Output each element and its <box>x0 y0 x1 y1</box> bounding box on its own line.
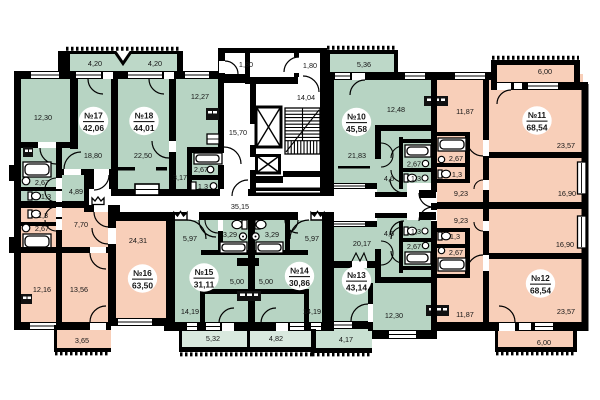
svg-text:4,17: 4,17 <box>339 335 353 344</box>
svg-text:14,04: 14,04 <box>297 93 315 102</box>
svg-text:2,67: 2,67 <box>194 165 208 174</box>
svg-text:23,57: 23,57 <box>557 307 575 316</box>
svg-text:5,97: 5,97 <box>305 234 319 243</box>
svg-text:12,16: 12,16 <box>33 285 51 294</box>
svg-text:31,11: 31,11 <box>194 279 215 289</box>
svg-text:2,67: 2,67 <box>449 248 463 257</box>
svg-text:35,15: 35,15 <box>231 202 249 211</box>
svg-text:1,3: 1,3 <box>450 232 460 241</box>
svg-text:14,19: 14,19 <box>181 307 199 316</box>
svg-text:1,3: 1,3 <box>38 211 48 220</box>
svg-text:№13: №13 <box>347 270 366 280</box>
svg-text:14,19: 14,19 <box>303 307 321 316</box>
svg-text:3,17: 3,17 <box>173 173 187 182</box>
svg-text:16,90: 16,90 <box>556 240 574 249</box>
svg-text:5,36: 5,36 <box>357 60 371 69</box>
svg-text:12,30: 12,30 <box>385 311 403 320</box>
svg-text:3,29: 3,29 <box>223 230 237 239</box>
svg-text:4,20: 4,20 <box>148 59 162 68</box>
svg-text:2,67: 2,67 <box>407 242 421 251</box>
svg-text:9,23: 9,23 <box>454 216 468 225</box>
svg-text:1,3: 1,3 <box>452 170 462 179</box>
svg-text:1,80: 1,80 <box>303 61 317 70</box>
svg-text:1,3: 1,3 <box>411 227 421 236</box>
svg-text:20,17: 20,17 <box>353 239 371 248</box>
svg-text:21,83: 21,83 <box>348 151 366 160</box>
svg-text:№17: №17 <box>84 110 103 120</box>
svg-text:№16: №16 <box>133 268 152 278</box>
svg-text:4,89: 4,89 <box>69 187 83 196</box>
svg-text:30,86: 30,86 <box>289 278 310 288</box>
svg-text:№15: №15 <box>195 267 214 277</box>
svg-text:2,67: 2,67 <box>35 178 49 187</box>
svg-text:5,32: 5,32 <box>206 334 220 343</box>
svg-text:23,57: 23,57 <box>557 141 575 150</box>
svg-text:№10: №10 <box>347 111 366 121</box>
svg-text:68,54: 68,54 <box>530 285 551 295</box>
svg-text:2,67: 2,67 <box>35 224 49 233</box>
svg-text:12,27: 12,27 <box>191 92 209 101</box>
svg-text:11,87: 11,87 <box>456 310 474 319</box>
svg-text:42,06: 42,06 <box>83 123 104 133</box>
svg-text:24,31: 24,31 <box>129 236 147 245</box>
svg-text:4,82: 4,82 <box>269 334 283 343</box>
svg-text:11,87: 11,87 <box>456 107 474 116</box>
svg-text:5,00: 5,00 <box>230 277 244 286</box>
svg-text:7,70: 7,70 <box>74 220 88 229</box>
svg-text:2,67: 2,67 <box>407 160 421 169</box>
svg-text:5,00: 5,00 <box>259 277 273 286</box>
svg-text:3,29: 3,29 <box>265 230 279 239</box>
svg-text:12,48: 12,48 <box>387 105 405 114</box>
svg-text:9,23: 9,23 <box>454 189 468 198</box>
svg-text:№11: №11 <box>528 110 547 120</box>
svg-text:15,70: 15,70 <box>229 128 247 137</box>
svg-text:1,80: 1,80 <box>239 60 253 69</box>
svg-text:45,58: 45,58 <box>346 124 367 134</box>
svg-text:63,50: 63,50 <box>132 280 153 290</box>
svg-text:1,3: 1,3 <box>411 174 421 183</box>
svg-text:4,6: 4,6 <box>384 174 394 183</box>
svg-text:16,90: 16,90 <box>558 189 576 198</box>
svg-text:1,3: 1,3 <box>41 192 51 201</box>
svg-text:№14: №14 <box>290 265 309 275</box>
svg-text:№12: №12 <box>531 273 550 283</box>
svg-text:18,80: 18,80 <box>84 151 102 160</box>
svg-text:3,65: 3,65 <box>75 336 89 345</box>
svg-text:6,00: 6,00 <box>537 338 551 347</box>
svg-text:4,20: 4,20 <box>88 59 102 68</box>
svg-text:№18: №18 <box>135 110 154 120</box>
svg-text:1,3: 1,3 <box>198 182 208 191</box>
svg-text:4,6: 4,6 <box>384 229 394 238</box>
svg-text:22,50: 22,50 <box>134 151 152 160</box>
svg-text:2,67: 2,67 <box>449 154 463 163</box>
svg-text:5,97: 5,97 <box>183 234 197 243</box>
svg-text:12,30: 12,30 <box>34 113 52 122</box>
svg-text:13,56: 13,56 <box>70 285 88 294</box>
svg-text:6,00: 6,00 <box>538 67 552 76</box>
svg-text:44,01: 44,01 <box>134 123 155 133</box>
svg-text:68,54: 68,54 <box>527 122 548 132</box>
svg-text:43,14: 43,14 <box>346 282 367 292</box>
